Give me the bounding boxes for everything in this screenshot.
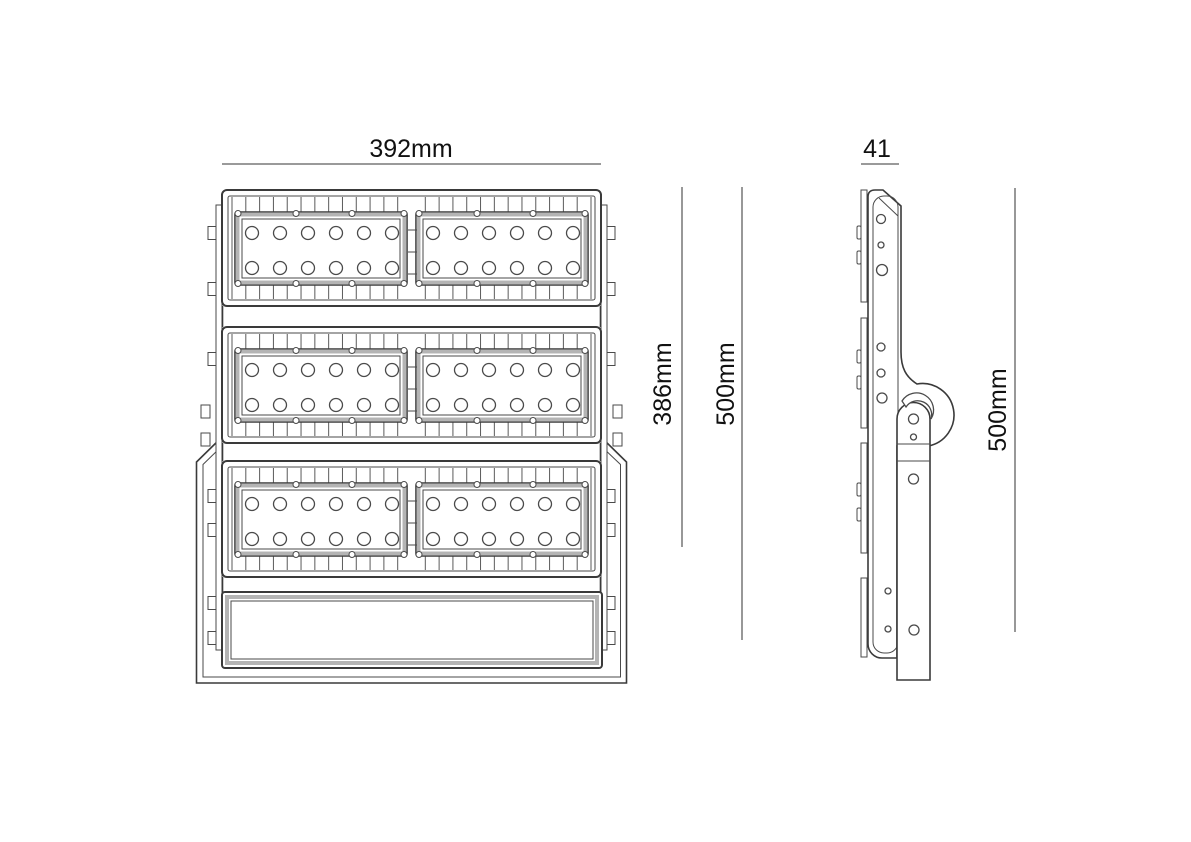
screw (474, 482, 480, 488)
panel-outline (235, 212, 407, 285)
screw (530, 418, 536, 424)
led (511, 399, 524, 412)
led (302, 262, 315, 275)
led (274, 364, 287, 377)
screw (401, 348, 407, 354)
screw (293, 482, 299, 488)
mount-clip (607, 490, 615, 503)
led-panel (416, 348, 588, 424)
screw (416, 211, 422, 217)
screw (401, 211, 407, 217)
led (483, 399, 496, 412)
led-panel (235, 211, 407, 287)
led (246, 498, 259, 511)
left-hinge-tab (201, 405, 210, 418)
drawing-canvas: 392mm 41 386mm 500mm 500mm (0, 0, 1191, 842)
screw (293, 348, 299, 354)
led (358, 227, 371, 240)
led (567, 399, 580, 412)
led (386, 364, 399, 377)
screw (582, 552, 588, 558)
dim-side-depth-label: 41 (863, 135, 891, 163)
screw (530, 552, 536, 558)
mount-clip (607, 597, 615, 610)
led (455, 227, 468, 240)
screw (293, 552, 299, 558)
led (427, 533, 440, 546)
arm-hole (909, 474, 919, 484)
led (455, 399, 468, 412)
led (455, 533, 468, 546)
left-hinge-tab (201, 433, 210, 446)
heatsink-edge-segment (861, 443, 867, 553)
clip-bump (857, 483, 861, 496)
led (539, 533, 552, 546)
led (511, 227, 524, 240)
led (274, 533, 287, 546)
clip-bump (857, 226, 861, 239)
panel-outline (416, 483, 588, 556)
screw (235, 211, 241, 217)
screw (235, 552, 241, 558)
screw (416, 348, 422, 354)
led (427, 498, 440, 511)
led-panel (235, 482, 407, 558)
clip-bump (857, 350, 861, 363)
led (358, 533, 371, 546)
side-view (857, 190, 954, 680)
arm-hole (909, 625, 919, 635)
heatsink-edge-segment (861, 578, 867, 657)
led (302, 399, 315, 412)
led (483, 262, 496, 275)
plate-hole (877, 393, 887, 403)
led (302, 533, 315, 546)
screw (582, 211, 588, 217)
screw (401, 418, 407, 424)
plate-hole (885, 626, 891, 632)
led (330, 498, 343, 511)
led (358, 399, 371, 412)
mount-clip (208, 283, 216, 296)
led-module-row (222, 190, 601, 306)
screw (349, 482, 355, 488)
screw (401, 552, 407, 558)
led-module-row (222, 461, 601, 577)
led (246, 227, 259, 240)
plate-hole (885, 588, 891, 594)
screw (349, 211, 355, 217)
led (511, 533, 524, 546)
mount-clip (607, 227, 615, 240)
panel-outline (235, 349, 407, 422)
screw (349, 552, 355, 558)
arm-hole (911, 434, 917, 440)
screw (293, 418, 299, 424)
module-array (208, 190, 615, 645)
led (567, 364, 580, 377)
led (246, 399, 259, 412)
led (427, 364, 440, 377)
led (330, 262, 343, 275)
led (511, 498, 524, 511)
screw (235, 418, 241, 424)
led (427, 262, 440, 275)
led (427, 399, 440, 412)
led (539, 227, 552, 240)
front-view (197, 190, 627, 683)
led (274, 399, 287, 412)
panel-outline (416, 349, 588, 422)
screw (530, 281, 536, 287)
led (567, 262, 580, 275)
led-panel (416, 482, 588, 558)
mount-clip (607, 283, 615, 296)
mount-clip (208, 490, 216, 503)
screw (416, 552, 422, 558)
technical-drawing: 392mm 41 386mm 500mm 500mm (0, 0, 1191, 842)
led (427, 227, 440, 240)
led (358, 262, 371, 275)
plate-hole (877, 215, 886, 224)
led (386, 262, 399, 275)
screw (474, 348, 480, 354)
led (539, 399, 552, 412)
screw (293, 281, 299, 287)
led (483, 533, 496, 546)
plate-hole (878, 242, 884, 248)
mount-clip (208, 632, 216, 645)
led (455, 364, 468, 377)
screw (416, 418, 422, 424)
screw (582, 281, 588, 287)
led (274, 498, 287, 511)
led (246, 533, 259, 546)
screw (416, 482, 422, 488)
led (330, 533, 343, 546)
screw (416, 281, 422, 287)
mount-clip (607, 524, 615, 537)
led (358, 364, 371, 377)
screw (530, 211, 536, 217)
led (302, 227, 315, 240)
screw (474, 211, 480, 217)
dim-total-height-label: 500mm (712, 342, 740, 425)
clip-bump (857, 508, 861, 521)
dim-side-height-label: 500mm (984, 368, 1012, 451)
screw (349, 418, 355, 424)
led (386, 399, 399, 412)
driver-box-outer (222, 592, 602, 668)
led (455, 498, 468, 511)
led (539, 498, 552, 511)
led (483, 364, 496, 377)
led (567, 498, 580, 511)
led-panel (235, 348, 407, 424)
screw (530, 482, 536, 488)
screw (235, 281, 241, 287)
screw (401, 281, 407, 287)
screw (235, 482, 241, 488)
screw (474, 552, 480, 558)
dim-module-height-label: 386mm (649, 342, 677, 425)
mount-clip (208, 353, 216, 366)
led (274, 227, 287, 240)
screw (401, 482, 407, 488)
dim-front-width-label: 392mm (369, 135, 452, 163)
right-hinge-tab (613, 433, 622, 446)
screw (349, 348, 355, 354)
screw (582, 348, 588, 354)
led (330, 399, 343, 412)
plate-hole (877, 343, 885, 351)
led (386, 227, 399, 240)
led (511, 364, 524, 377)
led (511, 262, 524, 275)
led (567, 533, 580, 546)
led (539, 262, 552, 275)
led (330, 227, 343, 240)
led (358, 498, 371, 511)
right-hinge-tab (613, 405, 622, 418)
heatsink-edge-segment (861, 318, 867, 428)
led (539, 364, 552, 377)
plate-hole (877, 369, 885, 377)
mount-clip (607, 632, 615, 645)
plate-hole (877, 265, 888, 276)
screw (582, 418, 588, 424)
mount-clip (208, 227, 216, 240)
screw (582, 482, 588, 488)
mount-clip (607, 353, 615, 366)
mount-clip (208, 524, 216, 537)
led (330, 364, 343, 377)
screw (235, 348, 241, 354)
screw (293, 211, 299, 217)
led (246, 364, 259, 377)
led (246, 262, 259, 275)
led (302, 364, 315, 377)
screw (474, 418, 480, 424)
led (274, 262, 287, 275)
panel-outline (235, 483, 407, 556)
clip-bump (857, 376, 861, 389)
panel-outline (416, 212, 588, 285)
led (386, 498, 399, 511)
led (455, 262, 468, 275)
screw (530, 348, 536, 354)
led (483, 227, 496, 240)
screw (474, 281, 480, 287)
heatsink-edge-segment (861, 190, 867, 302)
led (483, 498, 496, 511)
pivot-hole (909, 414, 919, 424)
led-panel (416, 211, 588, 287)
screw (349, 281, 355, 287)
led (567, 227, 580, 240)
led (386, 533, 399, 546)
led (302, 498, 315, 511)
led-module-row (222, 327, 601, 443)
clip-bump (857, 251, 861, 264)
mount-clip (208, 597, 216, 610)
